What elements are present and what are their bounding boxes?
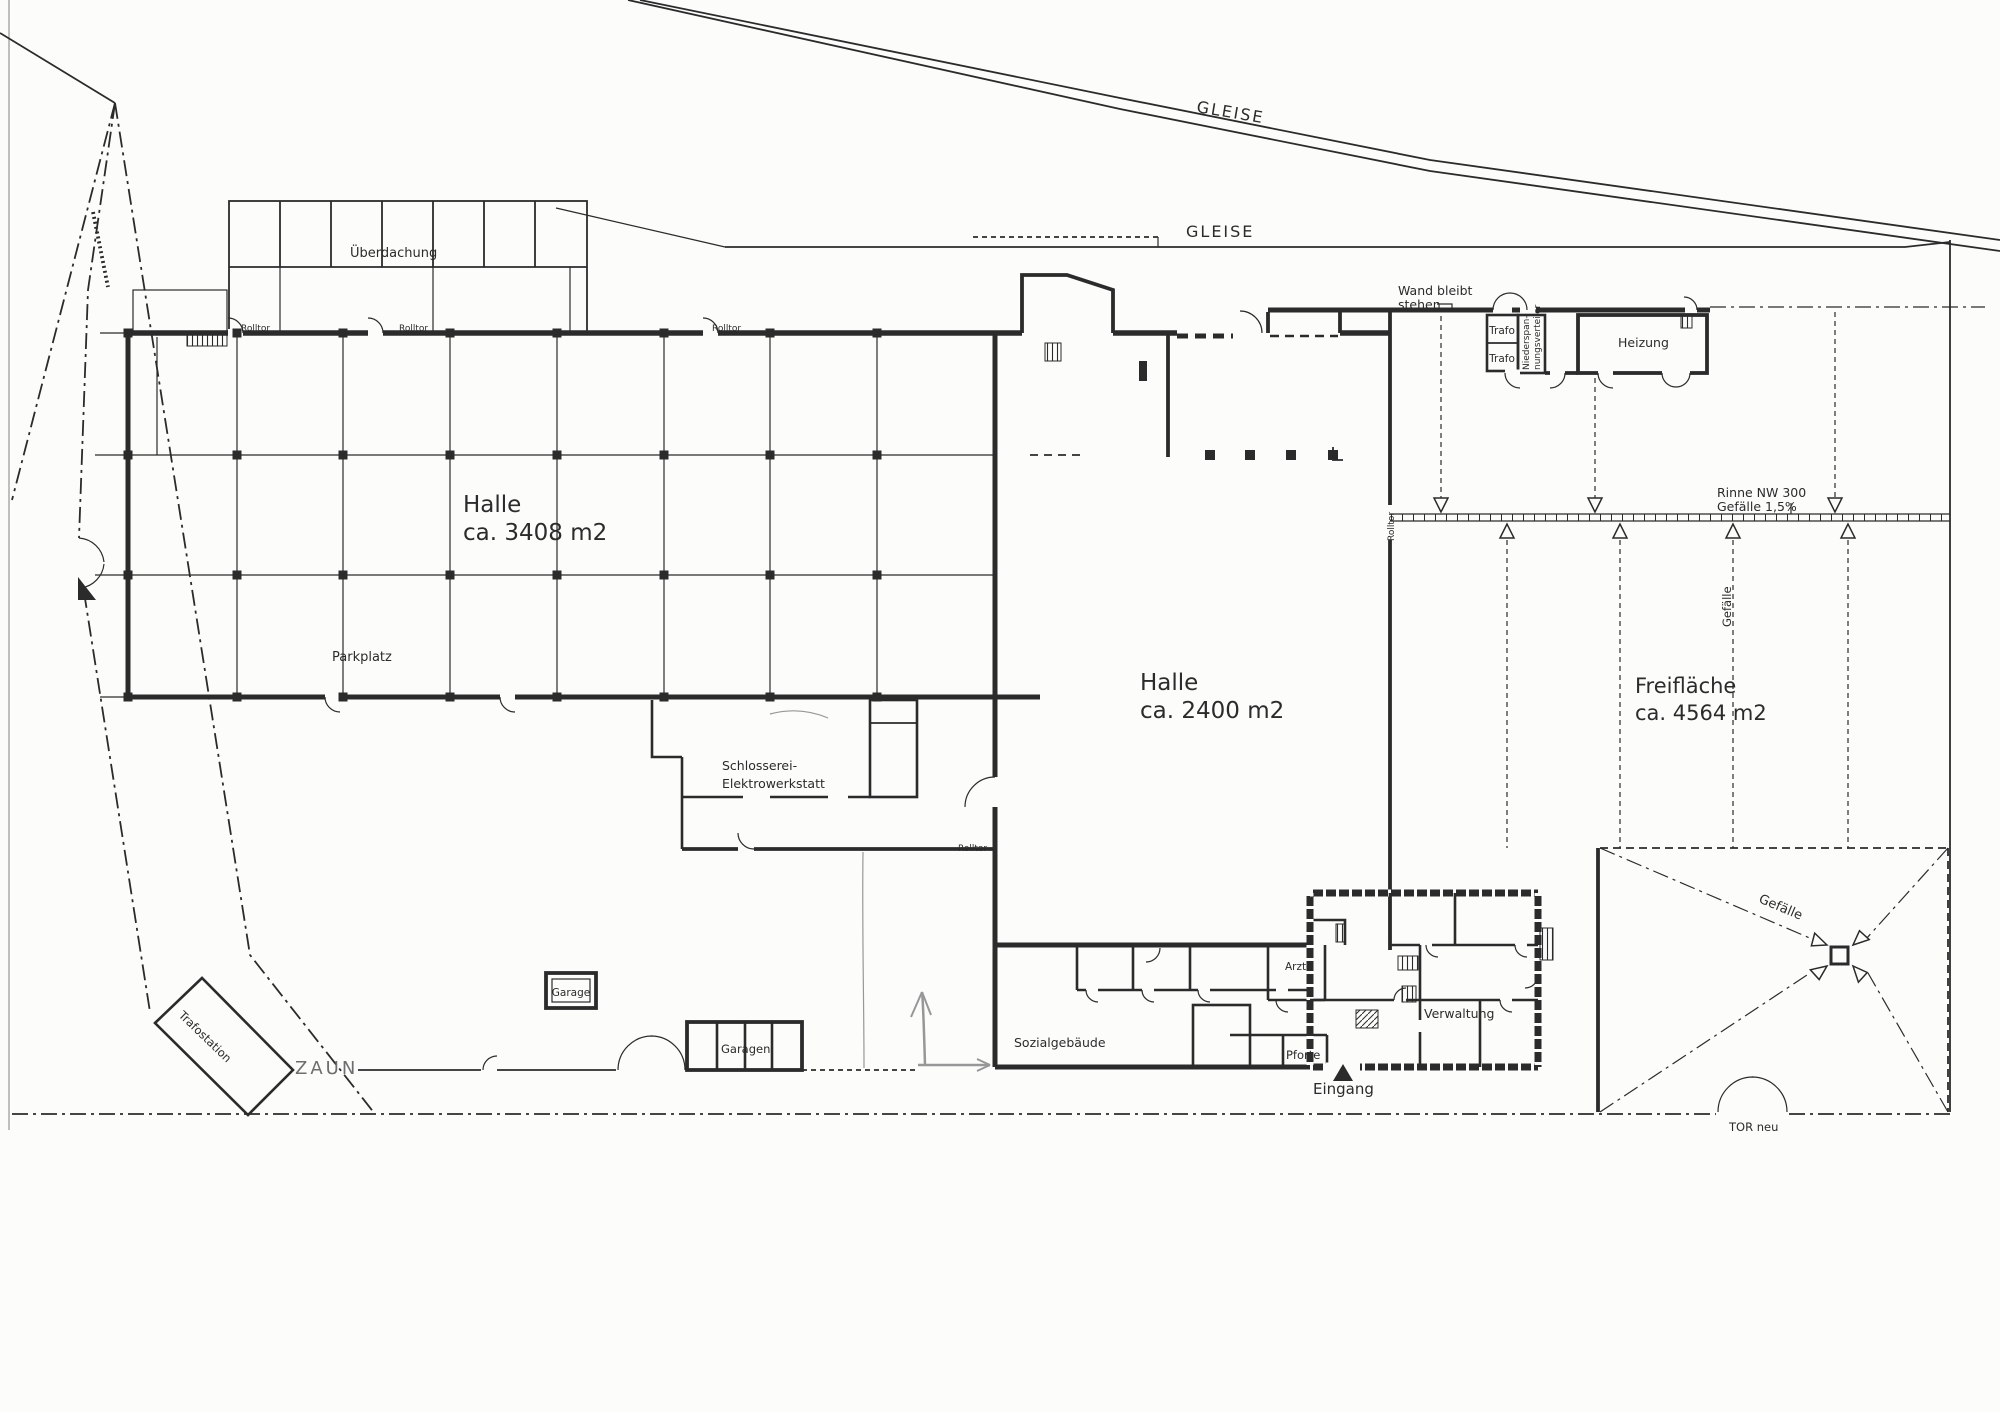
rinne-note-line2: Gefälle 1,5% bbox=[1717, 499, 1797, 514]
hall-middle bbox=[965, 275, 1390, 950]
schlosserei-label-line2: Elektrowerkstatt bbox=[722, 776, 825, 791]
schlosserei-label-line1: Schlosserei- bbox=[722, 758, 797, 773]
sozialgebaeude-label: Sozialgebäude bbox=[1014, 1035, 1106, 1050]
schlosserei-workshop bbox=[652, 700, 995, 1068]
south-building-complex bbox=[995, 893, 1553, 1081]
wand-note-line1: Wand bleibt bbox=[1398, 283, 1473, 298]
gefaelle-open-area: Gefälle bbox=[1720, 586, 1734, 627]
trafo-room-label-2: Trafo bbox=[1488, 353, 1515, 365]
nsv-room-label-2: nungsverteiler bbox=[1533, 304, 1543, 370]
open-area-drain bbox=[1598, 848, 1948, 1112]
site-plan-drawing: GLEISE GLEISE Überdachung Rolltor Rollto… bbox=[0, 0, 2000, 1412]
zaun-label: ZAUN bbox=[295, 1058, 358, 1079]
rolltor-label-5: Rolltor bbox=[1387, 512, 1397, 541]
railway-tracks bbox=[556, 0, 2000, 251]
open-area-area: ca. 4564 m2 bbox=[1635, 701, 1767, 725]
hall-west bbox=[95, 290, 1040, 712]
open-area-name: Freifläche bbox=[1635, 674, 1736, 698]
nsv-room-label-1: Niederspan- bbox=[1522, 315, 1532, 370]
hall-west-area: ca. 3408 m2 bbox=[463, 520, 607, 546]
hall-middle-name: Halle bbox=[1140, 670, 1198, 696]
site-boundary bbox=[0, 0, 1950, 1130]
drainage-channel bbox=[1390, 312, 1950, 848]
labels: GLEISE GLEISE Überdachung Rolltor Rollto… bbox=[175, 97, 1806, 1134]
canopy-grid bbox=[229, 201, 587, 333]
rinne-note-line1: Rinne NW 300 bbox=[1717, 485, 1806, 500]
garage-label: Garage bbox=[552, 987, 590, 999]
rolltor-label-1: Rolltor bbox=[241, 324, 270, 334]
hall-middle-area: ca. 2400 m2 bbox=[1140, 698, 1284, 724]
hall-west-name: Halle bbox=[463, 492, 521, 518]
parkplatz-label: Parkplatz bbox=[332, 650, 392, 665]
canopy-label: Überdachung bbox=[350, 244, 437, 261]
rolltor-label-3: Rolltor bbox=[712, 324, 741, 334]
gleise-label-upper: GLEISE bbox=[1195, 97, 1266, 127]
tor-neu-label: TOR neu bbox=[1728, 1120, 1778, 1134]
arztzimmer-label: Arztr. bbox=[1285, 961, 1313, 973]
trafo-room-label-1: Trafo bbox=[1488, 325, 1515, 337]
gleise-label-lower: GLEISE bbox=[1186, 222, 1254, 241]
wand-note-line2: stehen bbox=[1398, 297, 1441, 312]
rolltor-label-4: Rolltor bbox=[958, 844, 987, 854]
rolltor-label-2: Rolltor bbox=[399, 324, 428, 334]
scanned-site-plan: GLEISE GLEISE Überdachung Rolltor Rollto… bbox=[0, 0, 2000, 1412]
pforte-label: Pforte bbox=[1286, 1048, 1320, 1062]
eingang-label: Eingang bbox=[1313, 1080, 1374, 1098]
garagen-label: Garagen bbox=[721, 1042, 770, 1056]
verwaltung-label: Verwaltung bbox=[1424, 1006, 1494, 1021]
trafostation-label: Trafostation bbox=[175, 1007, 234, 1065]
heizung-room-label: Heizung bbox=[1618, 335, 1669, 350]
